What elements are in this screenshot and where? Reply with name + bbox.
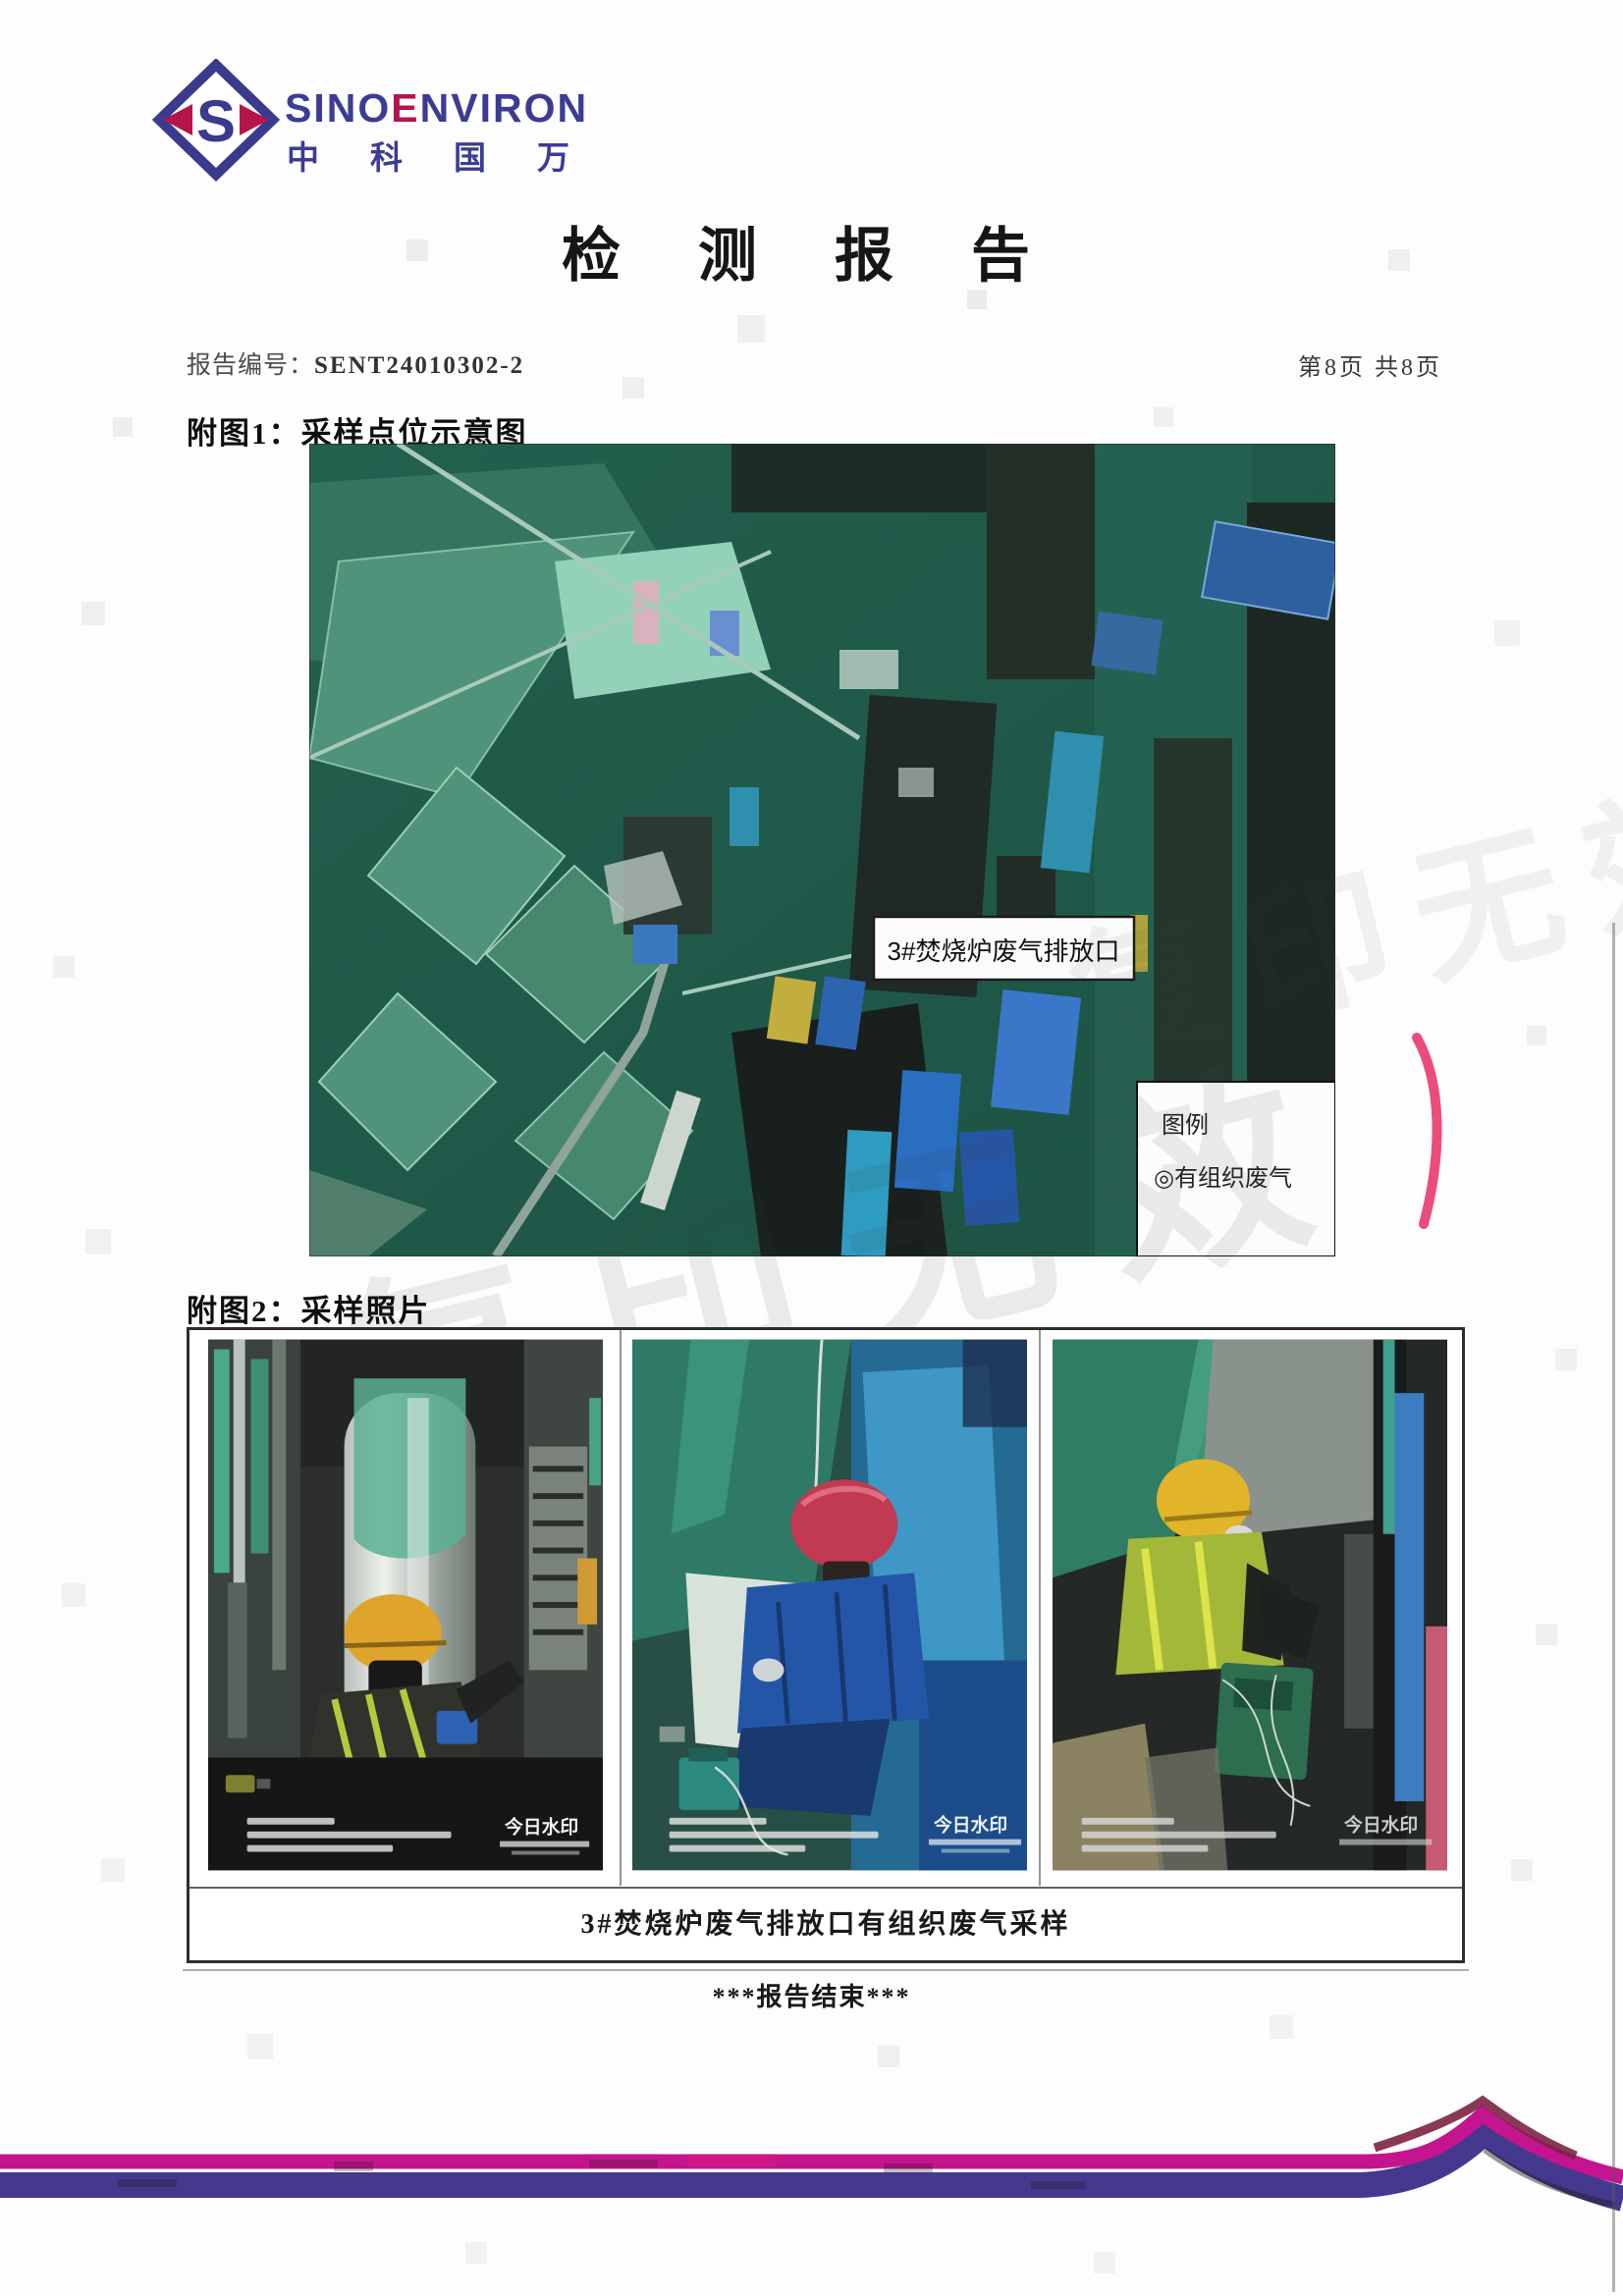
photos-divider	[620, 1330, 622, 1886]
scanned-report-page: S SINOENVIRON 中科国万 检 测 报 告 报告编号：SENT2401…	[0, 0, 1623, 2296]
stamp-arc	[1394, 1023, 1483, 1239]
footer-wave-art	[0, 2101, 1623, 2205]
logo-monogram: S	[196, 88, 236, 154]
footer-wave	[0, 2091, 1623, 2238]
caption-divider	[189, 1887, 1463, 1889]
end-of-report: ***报告结束***	[0, 1977, 1623, 2013]
photo-watermark-brand: 今日水印	[1344, 1814, 1418, 1836]
brand-name-en: SINOENVIRON	[285, 85, 588, 131]
company-logo: S SINOENVIRON 中科国万	[147, 59, 609, 187]
photo-3-art: 今日水印	[1053, 1340, 1447, 1871]
report-number-label: 报告编号：	[187, 352, 314, 379]
report-number-value: SENT24010302-2	[314, 352, 524, 379]
photo-2-art: 今日水印	[632, 1340, 1027, 1871]
brand-name-cn: 中科国万	[287, 139, 609, 176]
sampling-photo-2: 今日水印	[632, 1337, 1027, 1873]
logo-diamond-icon: S	[159, 65, 273, 175]
document-title: 检 测 报 告	[0, 208, 1623, 294]
scan-edge-line	[1612, 923, 1615, 2292]
report-number: 报告编号：SENT24010302-2	[187, 346, 524, 381]
page-indicator: 第8页 共8页	[1298, 347, 1442, 382]
panel-underline	[183, 1969, 1469, 1971]
photo-watermark-brand: 今日水印	[934, 1814, 1007, 1836]
scan-noise	[0, 0, 10, 10]
sampling-photo-3: 今日水印	[1053, 1337, 1447, 1873]
photo-1-art: 今日水印	[208, 1340, 603, 1871]
photos-divider	[1039, 1330, 1041, 1886]
photo-watermark-brand: 今日水印	[505, 1816, 578, 1838]
figure2-heading: 附图2：采样照片	[187, 1286, 431, 1330]
sampling-photo-1: 今日水印	[208, 1337, 603, 1873]
photos-caption: 3#焚烧炉废气排放口有组织废气采样	[187, 1902, 1465, 1942]
